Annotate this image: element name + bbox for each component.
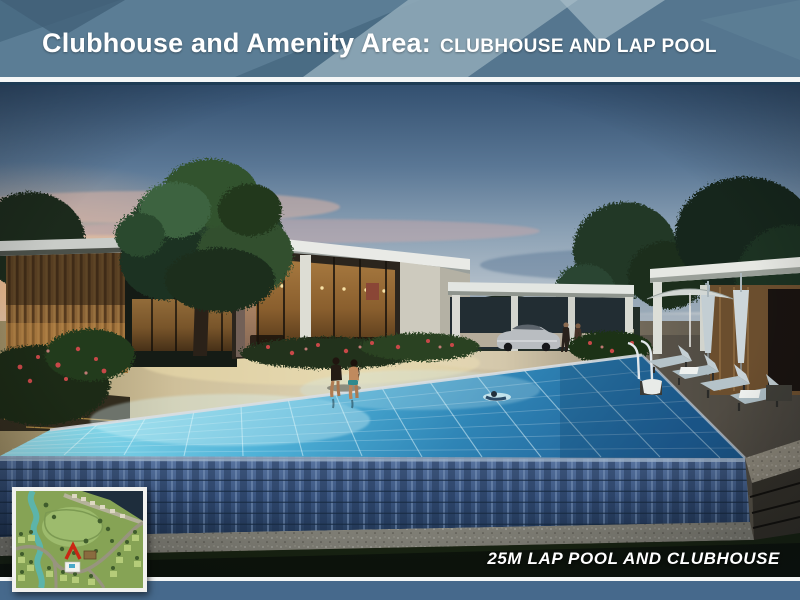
map-court bbox=[84, 551, 96, 559]
slide-title-main: Clubhouse and Amenity Area: bbox=[42, 28, 431, 58]
site-plan-inset bbox=[12, 487, 147, 592]
slide-title-sub: CLUBHOUSE AND LAP POOL bbox=[440, 36, 717, 57]
presentation-slide: Clubhouse and Amenity Area:CLUBHOUSE AND… bbox=[0, 0, 800, 600]
site-plan-map bbox=[16, 491, 143, 588]
photo-caption: 25M LAP POOL AND CLUBHOUSE bbox=[487, 549, 780, 569]
map-clubhouse bbox=[65, 562, 80, 572]
slide-header: Clubhouse and Amenity Area:CLUBHOUSE AND… bbox=[0, 0, 800, 77]
slide-title: Clubhouse and Amenity Area:CLUBHOUSE AND… bbox=[0, 0, 800, 57]
